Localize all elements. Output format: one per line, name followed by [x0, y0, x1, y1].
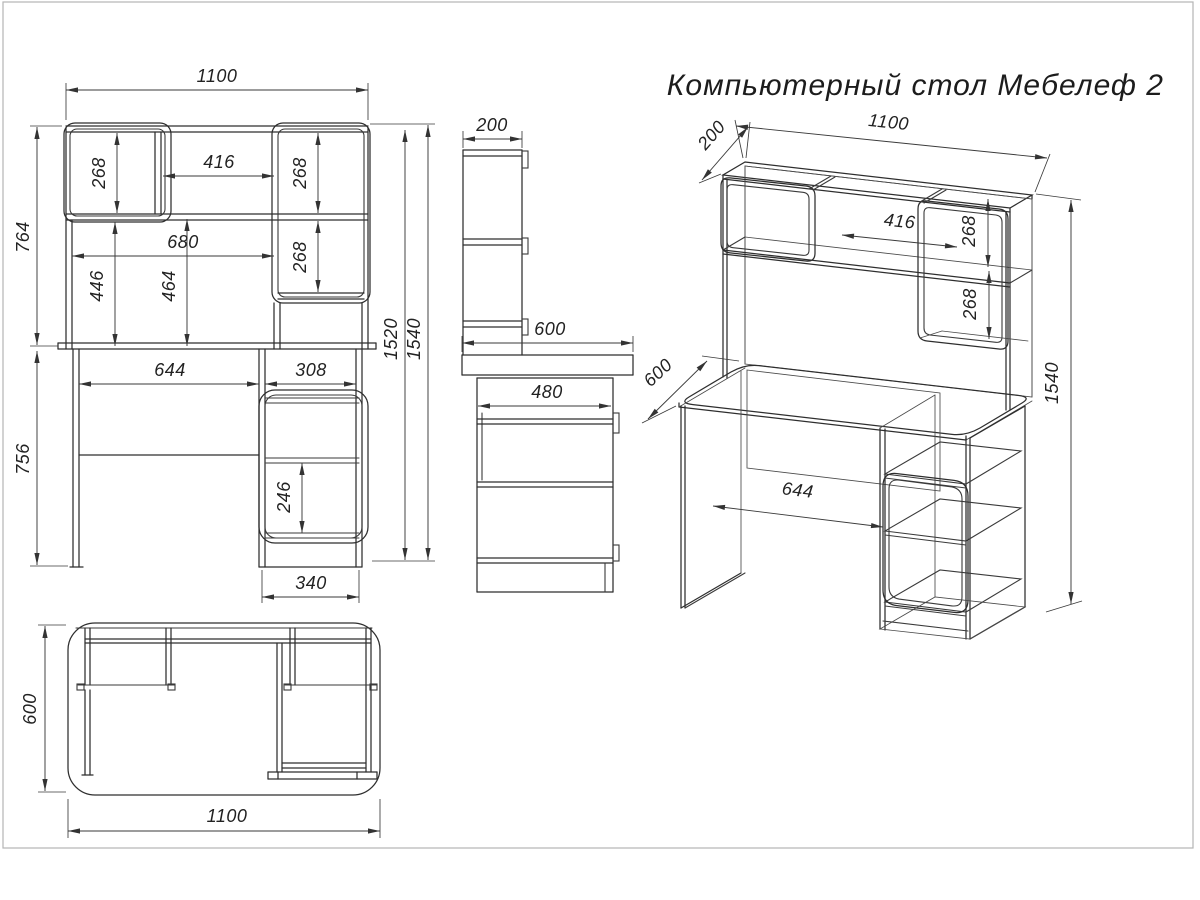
- dim-iso-shelf-mid: 268: [960, 288, 980, 321]
- dim-iso-width: 1100: [867, 110, 910, 134]
- dim-iso-shelf-top: 268: [959, 215, 979, 248]
- dim-top-width: 1100: [207, 806, 248, 826]
- drawing-sheet: Компьютерный стол Мебелеф 2: [0, 0, 1200, 900]
- dim-front-inner-width: 680: [167, 232, 199, 252]
- drawing-title: Компьютерный стол Мебелеф 2: [667, 69, 1164, 102]
- side-pedestal: [477, 378, 619, 592]
- dim-iso-niche-width: 416: [883, 209, 917, 232]
- blueprint-canvas: Компьютерный стол Мебелеф 2: [0, 0, 1200, 900]
- side-dimensions: 200 600 480: [462, 115, 633, 406]
- iso-pedestal: [880, 395, 1025, 639]
- front-desktop: [58, 343, 376, 349]
- top-dimensions: 600 1100: [20, 625, 380, 838]
- dim-front-total-height: 1540: [404, 318, 424, 360]
- dim-front-base-height: 756: [13, 443, 33, 475]
- front-view: 1100 764 756 268 416 268 268 680 446 464…: [13, 66, 435, 603]
- dim-front-drawer-space: 246: [274, 481, 294, 514]
- dim-front-width: 1100: [197, 66, 238, 86]
- side-hutch: [463, 150, 528, 355]
- dim-front-height-to-top: 1520: [381, 318, 401, 360]
- sheet-border: [3, 2, 1193, 848]
- front-dimensions: 1100 764 756 268 416 268 268 680 446 464…: [13, 66, 435, 603]
- iso-desktop: [679, 365, 1032, 440]
- dim-front-left-shelf: 268: [89, 157, 109, 190]
- dim-iso-desk-depth: 600: [640, 355, 677, 391]
- dim-front-hutch-height: 764: [13, 221, 33, 253]
- dim-side-pedestal-depth: 480: [531, 382, 563, 402]
- dim-iso-hutch-depth: 200: [693, 117, 729, 155]
- front-base: [70, 349, 368, 567]
- dim-iso-total-height: 1540: [1042, 362, 1062, 404]
- dim-front-inner-left-height: 446: [87, 270, 107, 302]
- dim-iso-knee-width: 644: [781, 478, 815, 502]
- iso-dimensions: 200 1100 416 268 268 600 644: [640, 110, 1082, 612]
- dim-front-knee-width: 644: [154, 360, 186, 380]
- side-desktop: [462, 355, 633, 375]
- dim-front-right-shelf-mid: 268: [290, 241, 310, 274]
- dim-front-inner-mid-height: 464: [159, 270, 179, 302]
- dim-front-pedestal-width: 340: [295, 573, 327, 593]
- top-view: 600 1100: [20, 623, 380, 838]
- dim-side-hutch-depth: 200: [475, 115, 508, 135]
- dim-side-desk-depth: 600: [534, 319, 566, 339]
- dim-front-niche-width: 416: [203, 152, 235, 172]
- dim-front-right-shelf-top: 268: [290, 157, 310, 190]
- iso-view: 200 1100 416 268 268 600 644: [640, 110, 1082, 639]
- iso-back-panel: [747, 370, 940, 491]
- side-view: 200 600 480: [462, 115, 633, 592]
- dim-top-depth: 600: [20, 693, 40, 725]
- dim-front-pedestal-inner: 308: [295, 360, 327, 380]
- top-outline: [68, 623, 380, 795]
